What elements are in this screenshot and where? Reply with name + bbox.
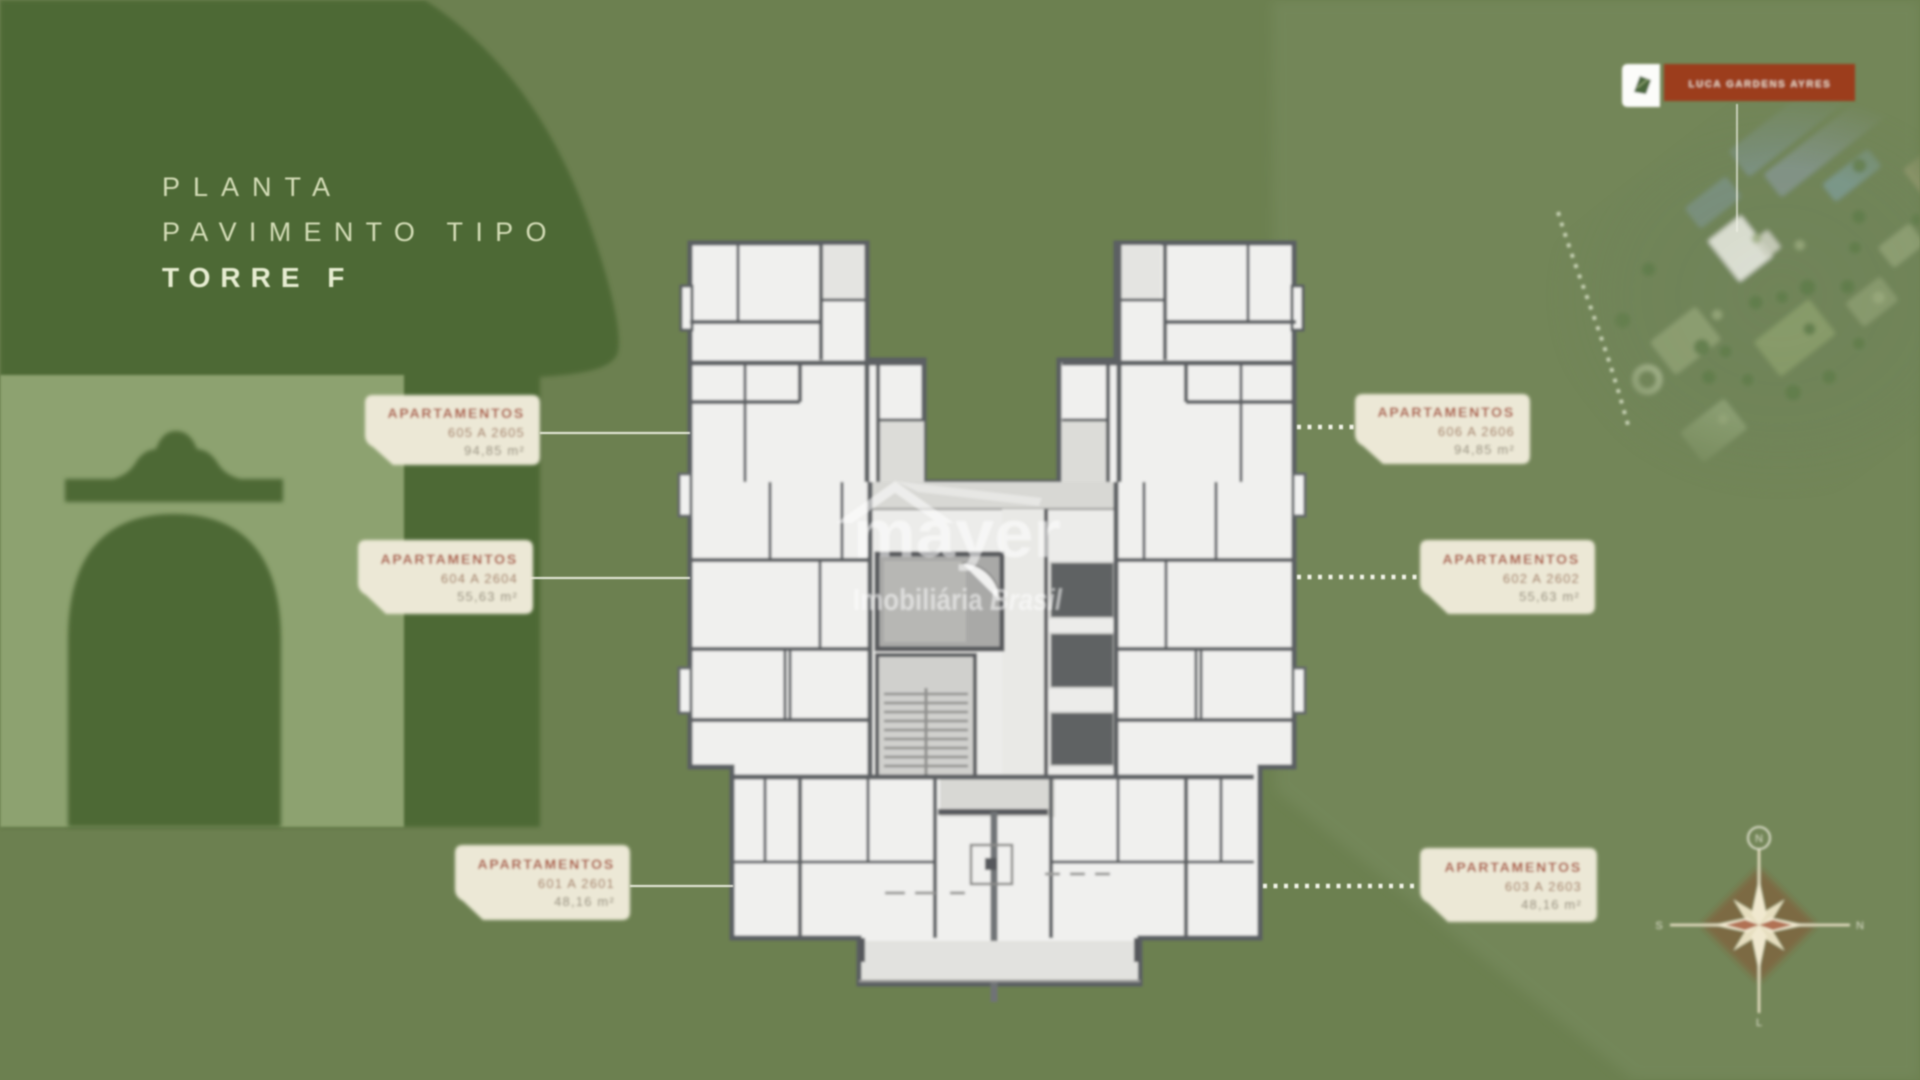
svg-text:LUCA GARDENS AYRES: LUCA GARDENS AYRES bbox=[1689, 79, 1832, 90]
svg-text:602 A 2602: 602 A 2602 bbox=[1503, 571, 1580, 586]
svg-text:55,63 m²: 55,63 m² bbox=[1519, 589, 1580, 604]
svg-text:PAVIMENTO TIPO: PAVIMENTO TIPO bbox=[162, 217, 559, 247]
svg-text:N: N bbox=[1755, 833, 1763, 845]
svg-text:604 A 2604: 604 A 2604 bbox=[441, 571, 518, 586]
svg-text:94,85 m²: 94,85 m² bbox=[464, 443, 525, 458]
svg-text:N: N bbox=[1856, 920, 1864, 932]
svg-text:L: L bbox=[1756, 1017, 1762, 1029]
svg-text:APARTAMENTOS: APARTAMENTOS bbox=[1378, 404, 1516, 420]
svg-text:APARTAMENTOS: APARTAMENTOS bbox=[478, 856, 616, 872]
svg-text:48,16 m²: 48,16 m² bbox=[554, 894, 615, 909]
svg-text:APARTAMENTOS: APARTAMENTOS bbox=[1445, 859, 1583, 875]
svg-text:APARTAMENTOS: APARTAMENTOS bbox=[381, 551, 519, 567]
svg-text:Imobiliária Brasil: Imobiliária Brasil bbox=[853, 582, 1063, 617]
svg-text:55,63 m²: 55,63 m² bbox=[457, 589, 518, 604]
svg-text:606 A 2606: 606 A 2606 bbox=[1438, 424, 1515, 439]
svg-text:TORRE F: TORRE F bbox=[162, 262, 354, 293]
svg-text:APARTAMENTOS: APARTAMENTOS bbox=[388, 405, 526, 421]
svg-text:PLANTA: PLANTA bbox=[162, 172, 343, 202]
svg-text:94,85 m²: 94,85 m² bbox=[1454, 442, 1515, 457]
svg-text:601 A 2601: 601 A 2601 bbox=[538, 876, 615, 891]
svg-text:605 A 2605: 605 A 2605 bbox=[448, 425, 525, 440]
svg-text:48,16 m²: 48,16 m² bbox=[1521, 897, 1582, 912]
svg-text:S: S bbox=[1655, 920, 1662, 932]
svg-text:603 A 2603: 603 A 2603 bbox=[1505, 879, 1582, 894]
svg-text:mayer: mayer bbox=[853, 496, 1061, 572]
svg-text:APARTAMENTOS: APARTAMENTOS bbox=[1443, 551, 1581, 567]
